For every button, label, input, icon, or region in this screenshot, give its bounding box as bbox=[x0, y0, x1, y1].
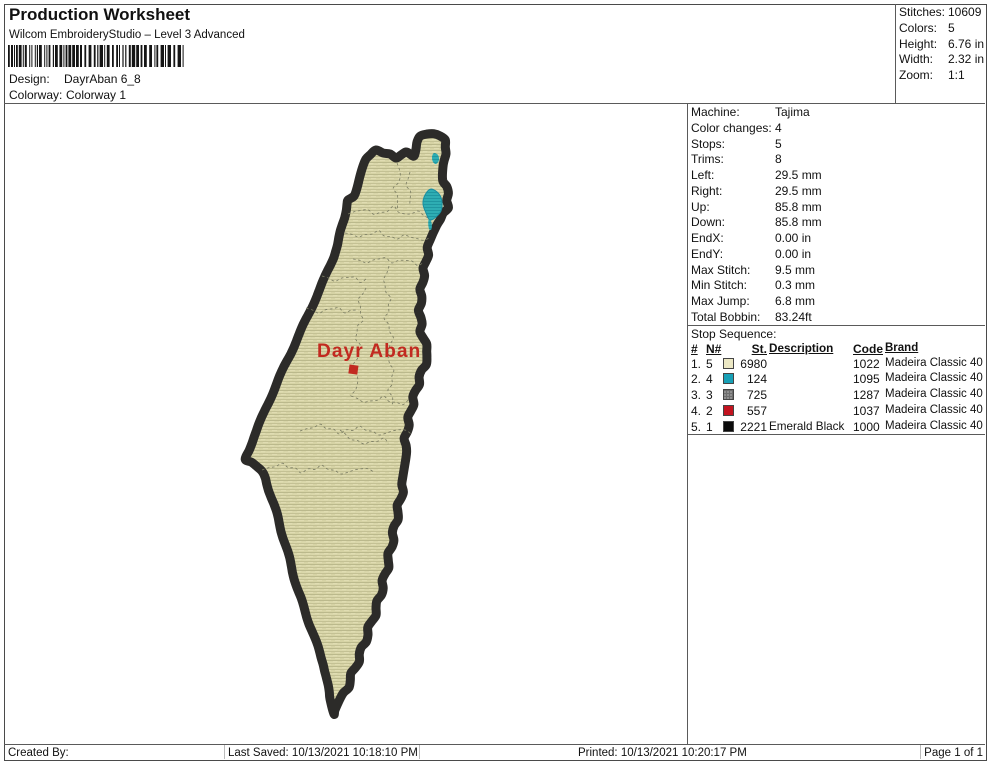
svg-text:Dayr Aban: Dayr Aban bbox=[317, 341, 421, 362]
